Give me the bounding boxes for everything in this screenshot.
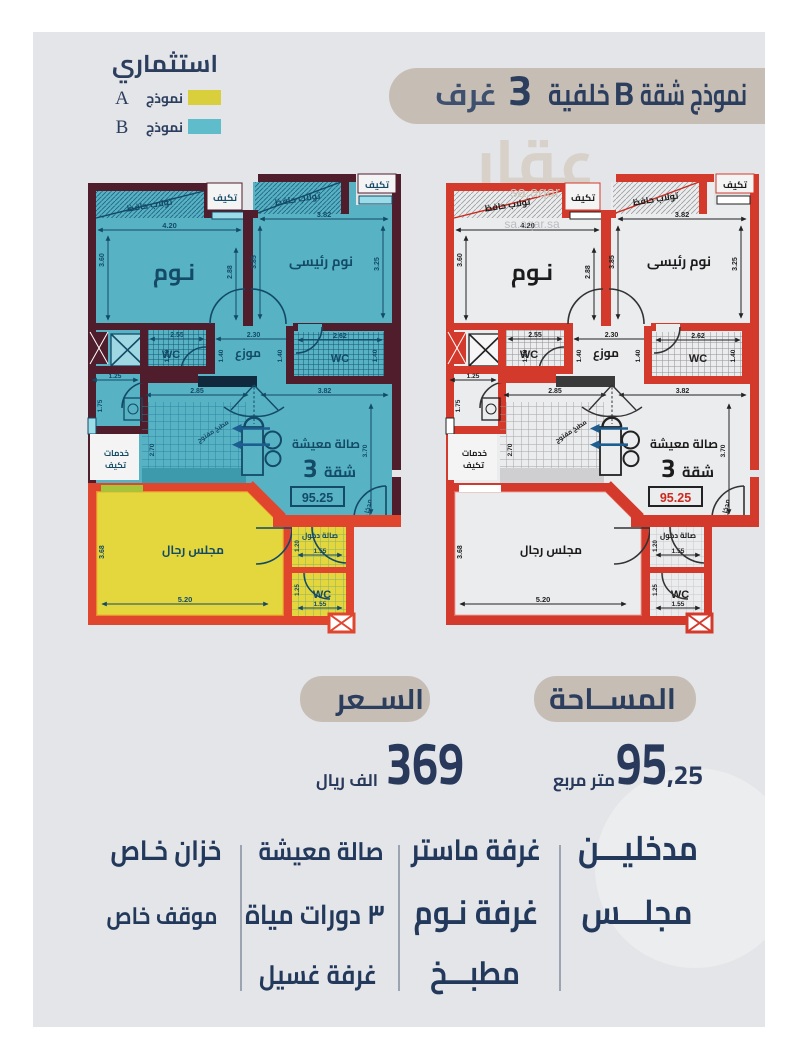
svg-text:WC: WC bbox=[331, 353, 349, 365]
svg-text:3.70: 3.70 bbox=[720, 444, 727, 457]
svg-text:2.62: 2.62 bbox=[333, 333, 347, 340]
svg-text:1.40: 1.40 bbox=[576, 349, 583, 362]
svg-text:5.20: 5.20 bbox=[536, 595, 551, 604]
svg-text:WC: WC bbox=[689, 353, 707, 365]
svg-text:1.40: 1.40 bbox=[522, 349, 529, 362]
svg-text:95.25: 95.25 bbox=[660, 491, 691, 505]
svg-text:1.40: 1.40 bbox=[372, 349, 379, 362]
svg-text:1.55: 1.55 bbox=[672, 601, 685, 608]
svg-text:3.60: 3.60 bbox=[457, 253, 464, 267]
svg-text:1.25: 1.25 bbox=[467, 373, 480, 380]
svg-text:1.75: 1.75 bbox=[455, 399, 462, 412]
svg-text:2.30: 2.30 bbox=[605, 332, 619, 339]
svg-text:1.25: 1.25 bbox=[653, 584, 659, 596]
svg-text:2.88: 2.88 bbox=[227, 265, 234, 279]
svg-text:3.82: 3.82 bbox=[317, 210, 332, 219]
svg-text:2.62: 2.62 bbox=[691, 333, 705, 340]
svg-text:1.40: 1.40 bbox=[730, 349, 737, 362]
svg-text:2.85: 2.85 bbox=[548, 388, 562, 395]
svg-text:3.25: 3.25 bbox=[732, 257, 739, 271]
svg-text:1.40: 1.40 bbox=[164, 349, 171, 362]
svg-text:3.82: 3.82 bbox=[676, 388, 690, 395]
svg-text:3.68: 3.68 bbox=[99, 545, 106, 559]
svg-text:B: B bbox=[116, 117, 129, 138]
svg-text:2.70: 2.70 bbox=[149, 443, 156, 456]
svg-text:A: A bbox=[115, 88, 129, 109]
svg-text:95.25: 95.25 bbox=[302, 491, 333, 505]
svg-text:3.68: 3.68 bbox=[457, 545, 464, 559]
svg-text:3.82: 3.82 bbox=[318, 388, 332, 395]
svg-text:1.25: 1.25 bbox=[109, 373, 122, 380]
svg-text:1.40: 1.40 bbox=[277, 349, 284, 362]
svg-text:5.20: 5.20 bbox=[178, 595, 193, 604]
svg-text:3.60: 3.60 bbox=[99, 253, 106, 267]
svg-text:2.30: 2.30 bbox=[247, 332, 261, 339]
svg-text:3.85: 3.85 bbox=[251, 255, 258, 269]
svg-text:1.20: 1.20 bbox=[295, 540, 301, 552]
svg-text:sa.aqar: sa.aqar bbox=[510, 184, 560, 201]
svg-text:4.20: 4.20 bbox=[162, 221, 177, 230]
svg-text:2.88: 2.88 bbox=[585, 265, 592, 279]
svg-text:1.20: 1.20 bbox=[653, 540, 659, 552]
svg-text:3.70: 3.70 bbox=[362, 444, 369, 457]
svg-text:3.82: 3.82 bbox=[675, 210, 690, 219]
svg-text:3.85: 3.85 bbox=[609, 255, 616, 269]
svg-text:2.70: 2.70 bbox=[507, 443, 514, 456]
svg-text:1.40: 1.40 bbox=[635, 349, 642, 362]
svg-text:3.25: 3.25 bbox=[374, 257, 381, 271]
svg-text:1.40: 1.40 bbox=[218, 349, 225, 362]
svg-text:1.25: 1.25 bbox=[295, 584, 301, 596]
svg-text:2.55: 2.55 bbox=[170, 332, 184, 339]
svg-text:sa.aqar.sa: sa.aqar.sa bbox=[504, 217, 560, 231]
svg-text:2.55: 2.55 bbox=[528, 332, 542, 339]
svg-text:2.85: 2.85 bbox=[190, 388, 204, 395]
svg-text:1.55: 1.55 bbox=[314, 601, 327, 608]
svg-text:1.75: 1.75 bbox=[97, 399, 104, 412]
